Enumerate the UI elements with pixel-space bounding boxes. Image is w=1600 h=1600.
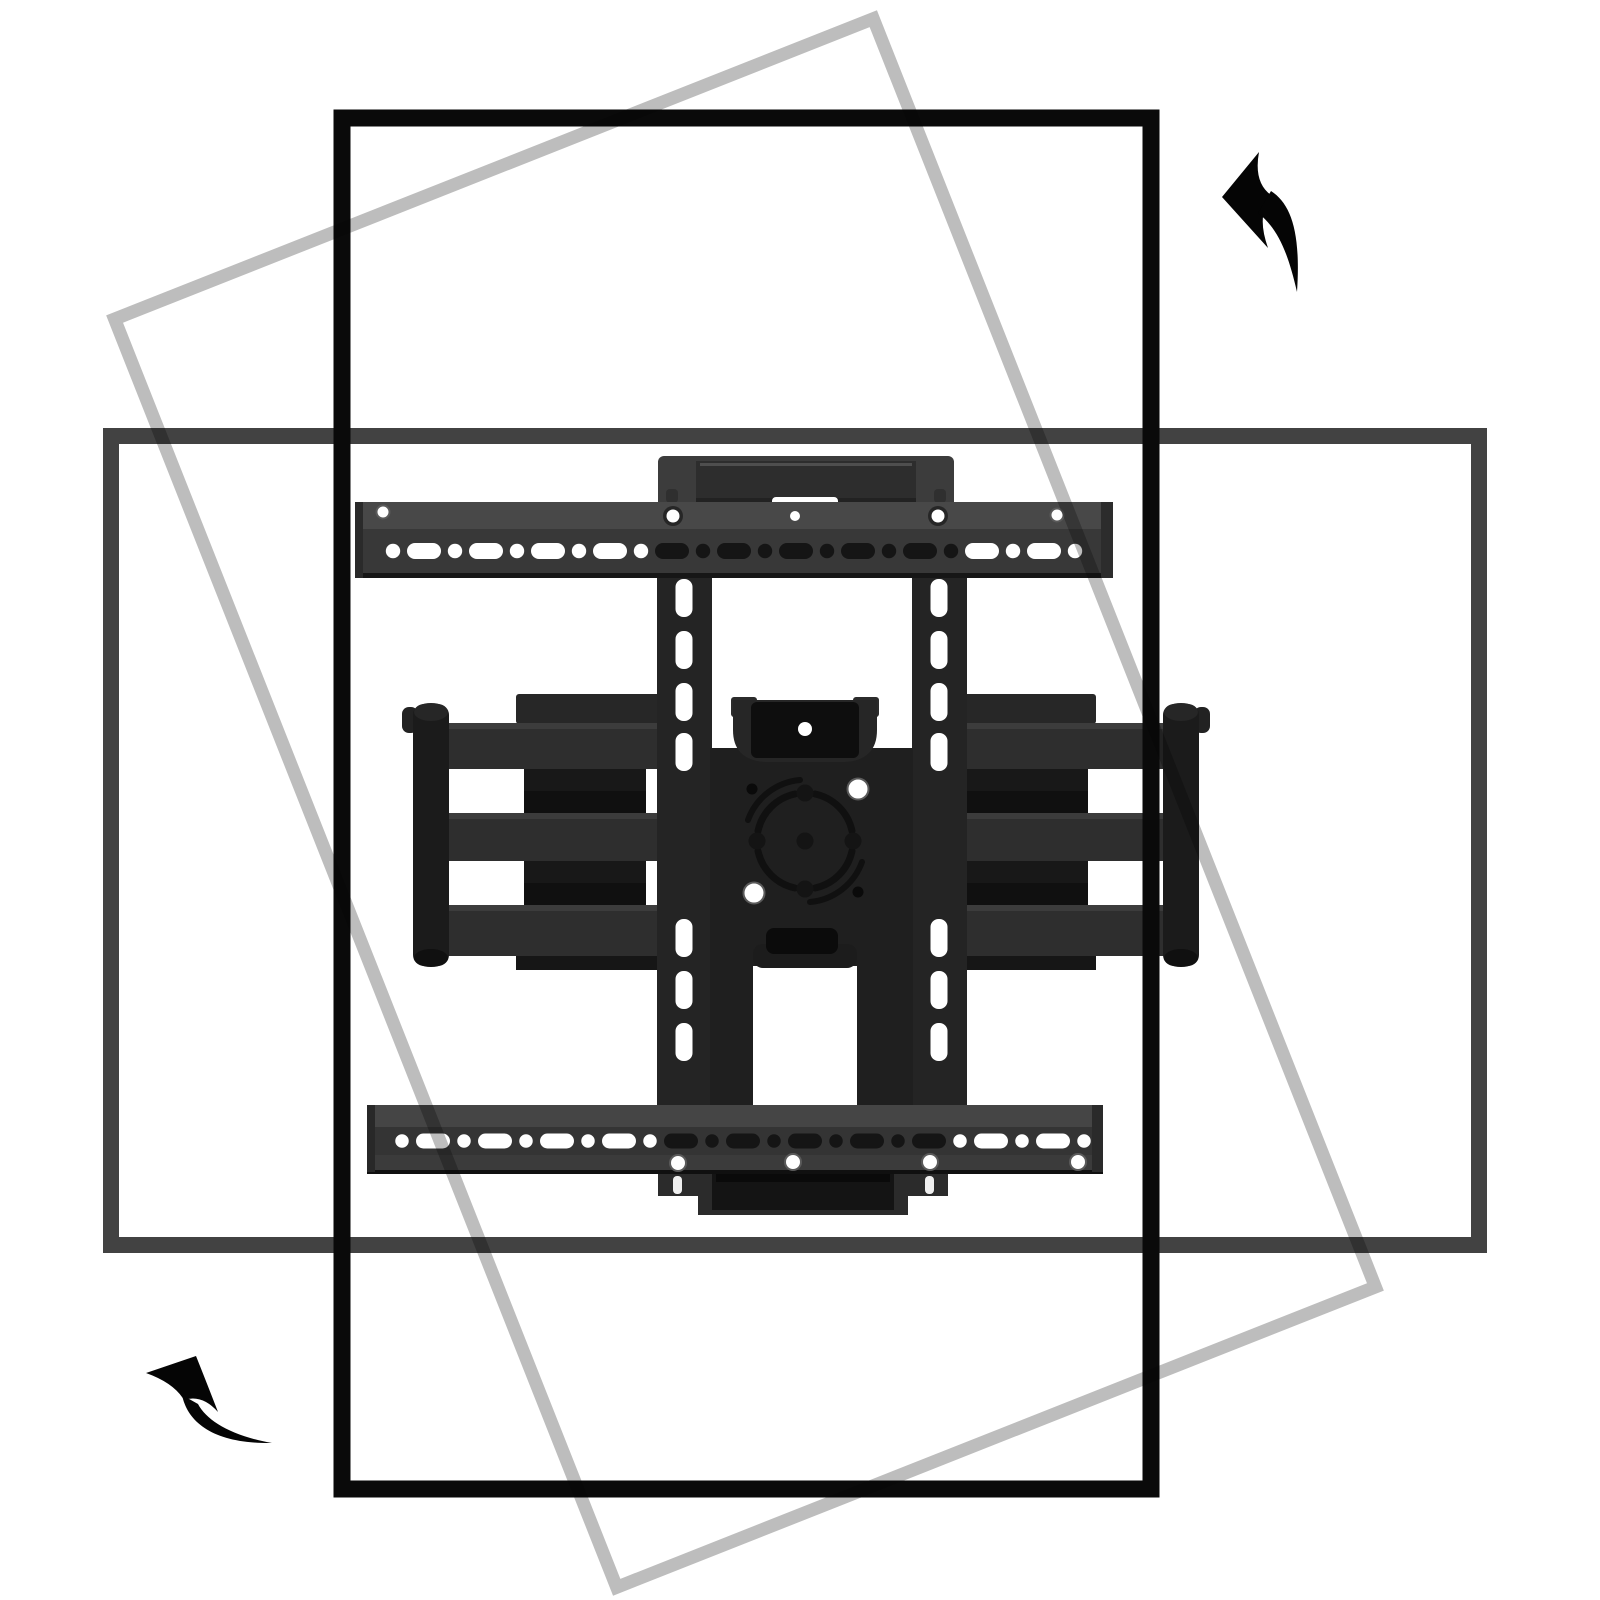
cup-screw-hole: [798, 722, 812, 736]
wall-plate-slot: [676, 631, 693, 669]
wall-plate-slot: [931, 733, 948, 771]
rail-hole: [696, 544, 710, 558]
rail-hole: [944, 544, 958, 558]
wall-plate-slot: [676, 971, 693, 1009]
bottom-bracket-slot: [925, 1176, 934, 1194]
lower-flange-hole: [1070, 1154, 1086, 1170]
dial-bolt-top: [797, 785, 814, 802]
wall-plate-slot: [676, 919, 693, 957]
wall-plate-slot: [676, 1023, 693, 1061]
rail-hole: [457, 1134, 471, 1148]
pilot-hole: [853, 887, 864, 898]
rail-hole: [643, 1134, 657, 1148]
lower-flange-hole: [785, 1154, 801, 1170]
top-rail-flange: [355, 502, 1113, 529]
rail-hole: [767, 1134, 781, 1148]
rail-slot: [850, 1134, 884, 1149]
bottom-rail-flange: [367, 1105, 1103, 1127]
rail-slot: [655, 543, 689, 559]
rail-slot: [965, 543, 999, 559]
rail-hole: [829, 1134, 843, 1148]
rail-hole: [758, 544, 772, 558]
plate-cutout-window: [753, 966, 857, 1108]
top-bracket-highlight: [700, 463, 912, 466]
rotation-diagram-canvas: [0, 0, 1600, 1600]
rail-slot: [779, 543, 813, 559]
bracket-hole-center: [790, 511, 800, 521]
bottom-rail-lower-flange: [367, 1155, 1103, 1172]
bracket-tab-right: [934, 489, 946, 503]
tv-wall-mount: [355, 456, 1210, 1215]
rotation-arrow-bottom-left-icon: [146, 1356, 272, 1443]
arrow-tail: [182, 1395, 272, 1443]
rotation-diagram: [0, 0, 1600, 1600]
top-vesa-rail: [355, 502, 1113, 578]
dial-bolt-right: [845, 833, 862, 850]
articulating-arm-right: [952, 694, 1210, 970]
rail-slot: [478, 1134, 512, 1149]
wall-plate-slot: [676, 733, 693, 771]
rail-slot: [717, 543, 751, 559]
dial-bolt-left: [749, 833, 766, 850]
rail-slot: [540, 1134, 574, 1149]
bottom-bracket-slot: [673, 1176, 682, 1194]
rail-slot: [903, 543, 937, 559]
vesa-hole: [848, 779, 869, 800]
top-rail-end-right: [1101, 502, 1113, 578]
rail-slot: [593, 543, 627, 559]
rail-hole: [519, 1134, 533, 1148]
rail-slot: [726, 1134, 760, 1149]
vesa-hole: [744, 883, 765, 904]
wall-plate-slot: [676, 683, 693, 721]
rail-slot: [664, 1134, 698, 1149]
rail-hole: [572, 544, 586, 558]
rail-slot: [974, 1134, 1008, 1149]
rail-slot: [841, 543, 875, 559]
rail-slot: [469, 543, 503, 559]
rail-hole: [510, 544, 524, 558]
dial-bolt-center: [797, 833, 814, 850]
bottom-rail-slot-row: [395, 1134, 1091, 1149]
rail-hole: [1015, 1134, 1029, 1148]
plate-clamp-bar: [766, 928, 838, 954]
bottom-rail-bottom-edge: [367, 1170, 1103, 1174]
wall-plate-slot: [931, 683, 948, 721]
articulating-arm-left: [402, 694, 660, 970]
rail-slot: [912, 1134, 946, 1149]
rail-hole: [395, 1134, 409, 1148]
rail-hole: [953, 1134, 967, 1148]
flange-hole: [377, 506, 390, 519]
top-rail-end-left: [355, 502, 363, 578]
lower-flange-hole: [922, 1154, 938, 1170]
arrow-head: [146, 1356, 218, 1412]
wall-plate-slot: [931, 1023, 948, 1061]
wall-plate-slot: [931, 579, 948, 617]
pilot-hole: [747, 784, 758, 795]
rail-slot: [788, 1134, 822, 1149]
bottom-rail-end-left: [367, 1105, 375, 1172]
rail-hole: [448, 544, 462, 558]
rail-hole: [705, 1134, 719, 1148]
rail-hole: [386, 544, 400, 558]
rail-slot: [531, 543, 565, 559]
dial-bolt-bottom: [797, 881, 814, 898]
rail-hole: [820, 544, 834, 558]
wall-plate-slot: [931, 631, 948, 669]
bracket-hole: [667, 510, 680, 523]
top-rail-bottom-edge: [355, 573, 1113, 578]
bracket-hole: [932, 510, 945, 523]
rail-hole: [634, 544, 648, 558]
bracket-tab-left: [666, 489, 678, 503]
rail-hole: [1006, 544, 1020, 558]
lower-flange-hole: [670, 1155, 686, 1171]
rail-hole: [581, 1134, 595, 1148]
wall-plate-slot: [931, 971, 948, 1009]
rail-slot: [1036, 1134, 1070, 1149]
wall-plate-slot: [931, 919, 948, 957]
bottom-vesa-rail: [367, 1105, 1103, 1174]
top-rail-slot-row: [386, 543, 1082, 559]
rail-hole: [882, 544, 896, 558]
bottom-rail-end-right: [1092, 1105, 1103, 1172]
wall-plate-slot: [676, 579, 693, 617]
rail-hole: [891, 1134, 905, 1148]
rail-slot: [602, 1134, 636, 1149]
rail-slot: [407, 543, 441, 559]
rotation-arrow-top-right-icon: [1222, 152, 1298, 292]
rail-slot: [1027, 543, 1061, 559]
rail-hole: [1077, 1134, 1091, 1148]
